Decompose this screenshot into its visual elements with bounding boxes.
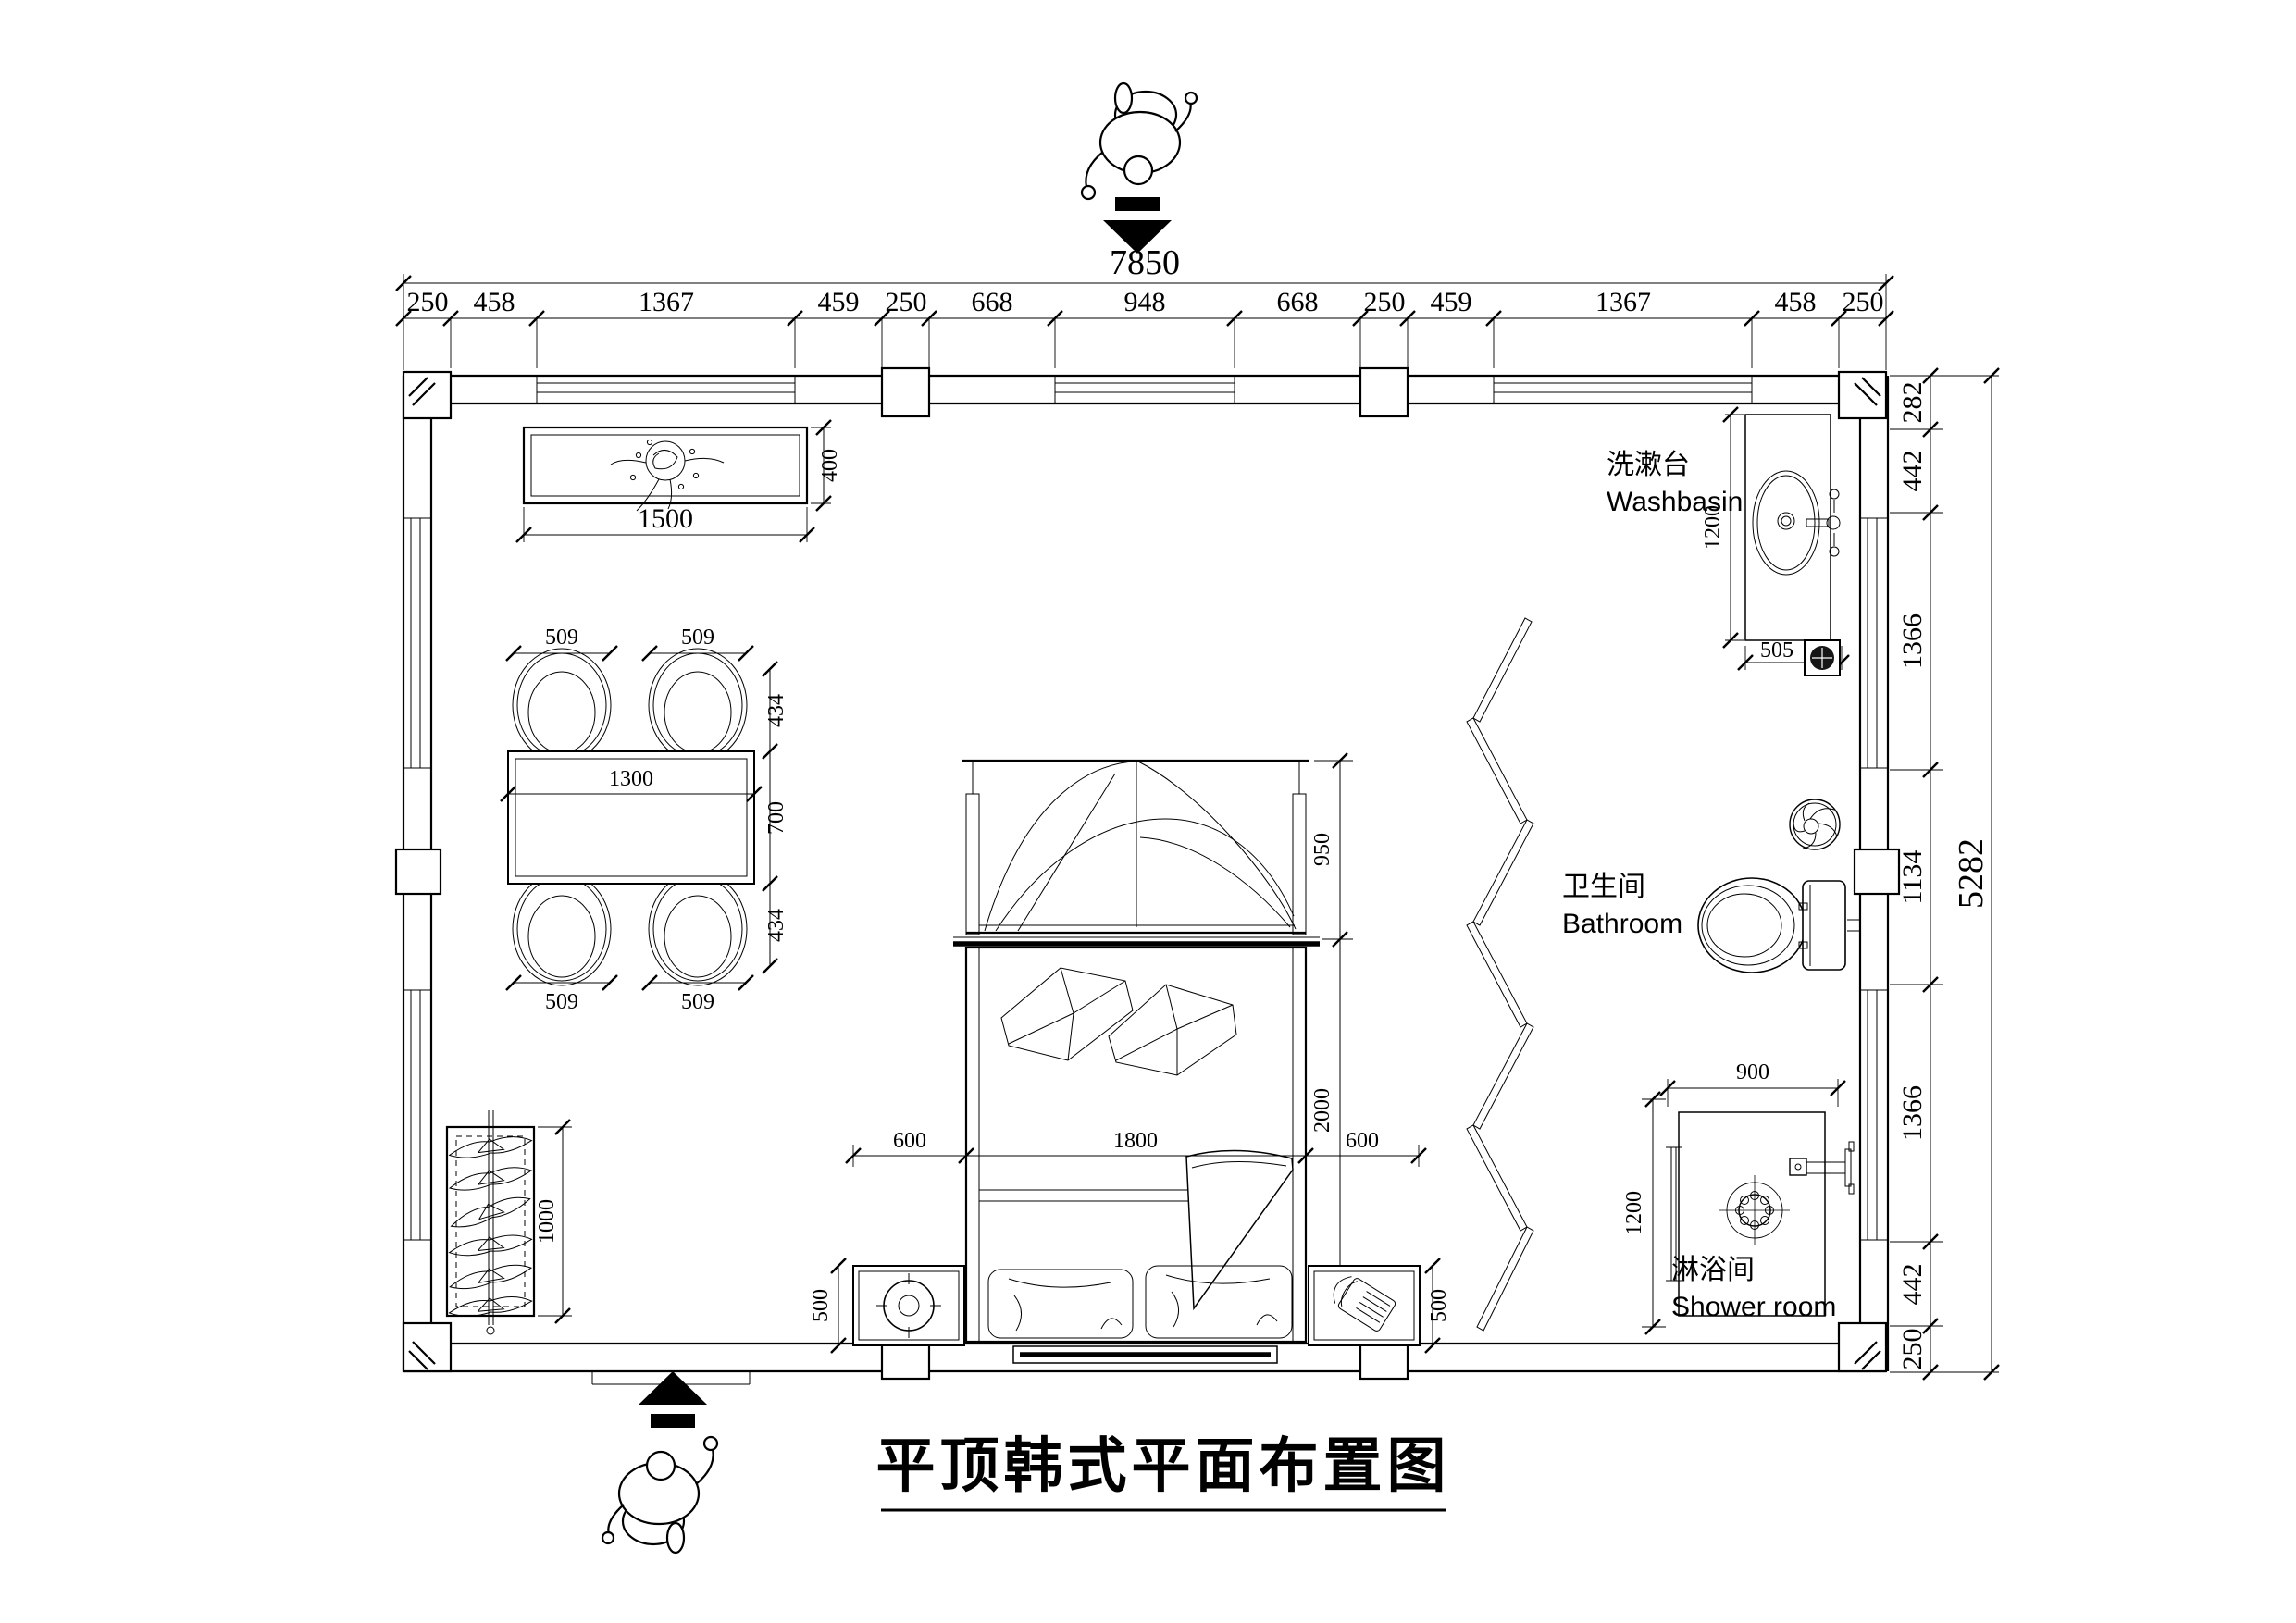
dining-set: 509 509 1300 434 700 434 509 509 xyxy=(501,626,788,1014)
dim-right-1: 442 xyxy=(1897,451,1928,492)
dim-right-5: 442 xyxy=(1897,1264,1928,1306)
console-cabinet: 1500 400 xyxy=(516,420,842,542)
dim-cabinet-d: 400 xyxy=(818,449,842,482)
dim-top-10: 1367 xyxy=(1595,287,1651,317)
dim-top-11: 458 xyxy=(1775,287,1817,317)
dim-top-7: 668 xyxy=(1277,287,1319,317)
dim-top-total: 7850 xyxy=(1110,243,1180,282)
person-bottom-icon xyxy=(602,1437,717,1553)
chair xyxy=(649,649,747,762)
sliding-door xyxy=(1013,1346,1277,1363)
dim-shower-d: 1200 xyxy=(1622,1191,1646,1235)
throw-pillows xyxy=(1001,968,1236,1075)
person-top-icon xyxy=(1082,83,1197,199)
entry-figure-top xyxy=(1082,83,1197,254)
washbasin-label-zh: 洗漱台 xyxy=(1607,450,1690,480)
dim-dining-side-1: 700 xyxy=(764,801,788,835)
dim-table-w: 1300 xyxy=(609,767,653,791)
washbasin-area: 1200 505 洗漱台 Washbasin xyxy=(1607,407,1849,675)
blanket xyxy=(979,1150,1293,1308)
dim-dining-side-2: 434 xyxy=(764,909,788,942)
dim-right-3: 1134 xyxy=(1897,850,1928,905)
window-top-left xyxy=(537,376,795,403)
bed: 600 1800 600 950 2000 xyxy=(846,753,1426,1342)
dim-right-6: 250 xyxy=(1897,1329,1928,1370)
window-left-lower xyxy=(403,990,431,1240)
dim-top-2: 1367 xyxy=(639,287,694,317)
washbasin-dims: 1200 505 xyxy=(1701,407,1849,670)
dim-chair-0: 509 xyxy=(545,626,578,650)
dim-bed-length: 2000 xyxy=(1310,1088,1334,1133)
dim-top-0: 250 xyxy=(407,287,449,317)
dim-chair-1: 509 xyxy=(681,626,714,650)
bed-pillows xyxy=(988,1266,1292,1338)
dim-bed-left: 600 xyxy=(893,1129,926,1153)
dim-top-3: 459 xyxy=(818,287,860,317)
chair xyxy=(513,649,611,762)
dim-top-9: 459 xyxy=(1431,287,1472,317)
dim-top-8: 250 xyxy=(1364,287,1406,317)
dim-right-4: 1366 xyxy=(1897,1085,1928,1141)
drawing-title: 平顶韩式平面布置图 xyxy=(876,1432,1451,1510)
window-right-lower xyxy=(1860,990,1888,1240)
dim-wardrobe: 1000 xyxy=(535,1199,559,1244)
window-right-upper xyxy=(1860,518,1888,768)
dim-shower-w: 900 xyxy=(1736,1060,1769,1084)
dim-cabinet-w: 1500 xyxy=(638,503,693,534)
wardrobe-dim: 1000 xyxy=(535,1120,572,1323)
shower-label-zh: 淋浴间 xyxy=(1671,1255,1755,1285)
right-dimension-chain: 282 442 1366 1134 1366 442 250 5282 xyxy=(1890,368,1999,1380)
shower-area: 900 1200 淋浴间 Shower room xyxy=(1622,1060,1854,1334)
bathroom-label-zh: 卫生间 xyxy=(1562,872,1645,902)
window-left-upper xyxy=(403,518,431,768)
dim-dining-side-0: 434 xyxy=(764,694,788,727)
chair xyxy=(649,873,747,985)
dim-chair-2: 509 xyxy=(545,990,578,1014)
entry-arrow-bottom-icon xyxy=(639,1371,707,1428)
dim-right-0: 282 xyxy=(1897,382,1928,424)
top-dimension-chain: 7850 250 458 1367 459 250 668 948 668 25… xyxy=(396,243,1893,370)
dim-right-2: 1366 xyxy=(1897,613,1928,669)
dim-top-12: 250 xyxy=(1843,287,1884,317)
dim-top-1: 458 xyxy=(474,287,515,317)
window-top-right xyxy=(1494,376,1752,403)
dim-bed-right: 600 xyxy=(1346,1129,1379,1153)
chair xyxy=(513,873,611,985)
nightstand-left: 500 xyxy=(809,1258,964,1353)
shower-head-icon xyxy=(1790,1142,1854,1194)
dim-canopy: 950 xyxy=(1310,833,1334,866)
dim-bed-width: 1800 xyxy=(1113,1129,1158,1153)
floor-drain xyxy=(1805,640,1840,675)
shower-label-en: Shower room xyxy=(1671,1292,1836,1322)
shower-drain-icon xyxy=(1719,1175,1790,1245)
folding-partition xyxy=(1467,618,1533,1331)
plant-decor xyxy=(611,440,724,511)
fan-drain-icon xyxy=(1790,799,1840,849)
dim-top-5: 668 xyxy=(972,287,1013,317)
dim-nightstand-left: 500 xyxy=(809,1289,833,1322)
floorplan-page: 7850 250 458 1367 459 250 668 948 668 25… xyxy=(0,0,2296,1623)
wardrobe: 1000 xyxy=(447,1110,572,1334)
nightstand-right: 500 xyxy=(1309,1258,1451,1353)
dim-basin-width: 505 xyxy=(1760,638,1793,663)
washbasin-label-en: Washbasin xyxy=(1607,487,1743,517)
cabinet-dims: 1500 400 xyxy=(516,420,842,542)
dim-chair-3: 509 xyxy=(681,990,714,1014)
floorplan-drawing: 7850 250 458 1367 459 250 668 948 668 25… xyxy=(0,0,2296,1623)
window-top-center xyxy=(1055,376,1235,403)
dim-top-6: 948 xyxy=(1124,287,1166,317)
dim-nightstand-right: 500 xyxy=(1427,1289,1451,1322)
toilet-icon xyxy=(1698,878,1860,973)
dim-right-total: 5282 xyxy=(1952,838,1991,909)
bathroom-area: 卫生间 Bathroom xyxy=(1562,799,1860,973)
bed-canopy xyxy=(962,761,1309,935)
dim-top-4: 250 xyxy=(886,287,927,317)
entry-figure-bottom xyxy=(602,1371,717,1553)
title-text: 平顶韩式平面布置图 xyxy=(876,1432,1451,1499)
bathroom-label-en: Bathroom xyxy=(1562,909,1682,939)
